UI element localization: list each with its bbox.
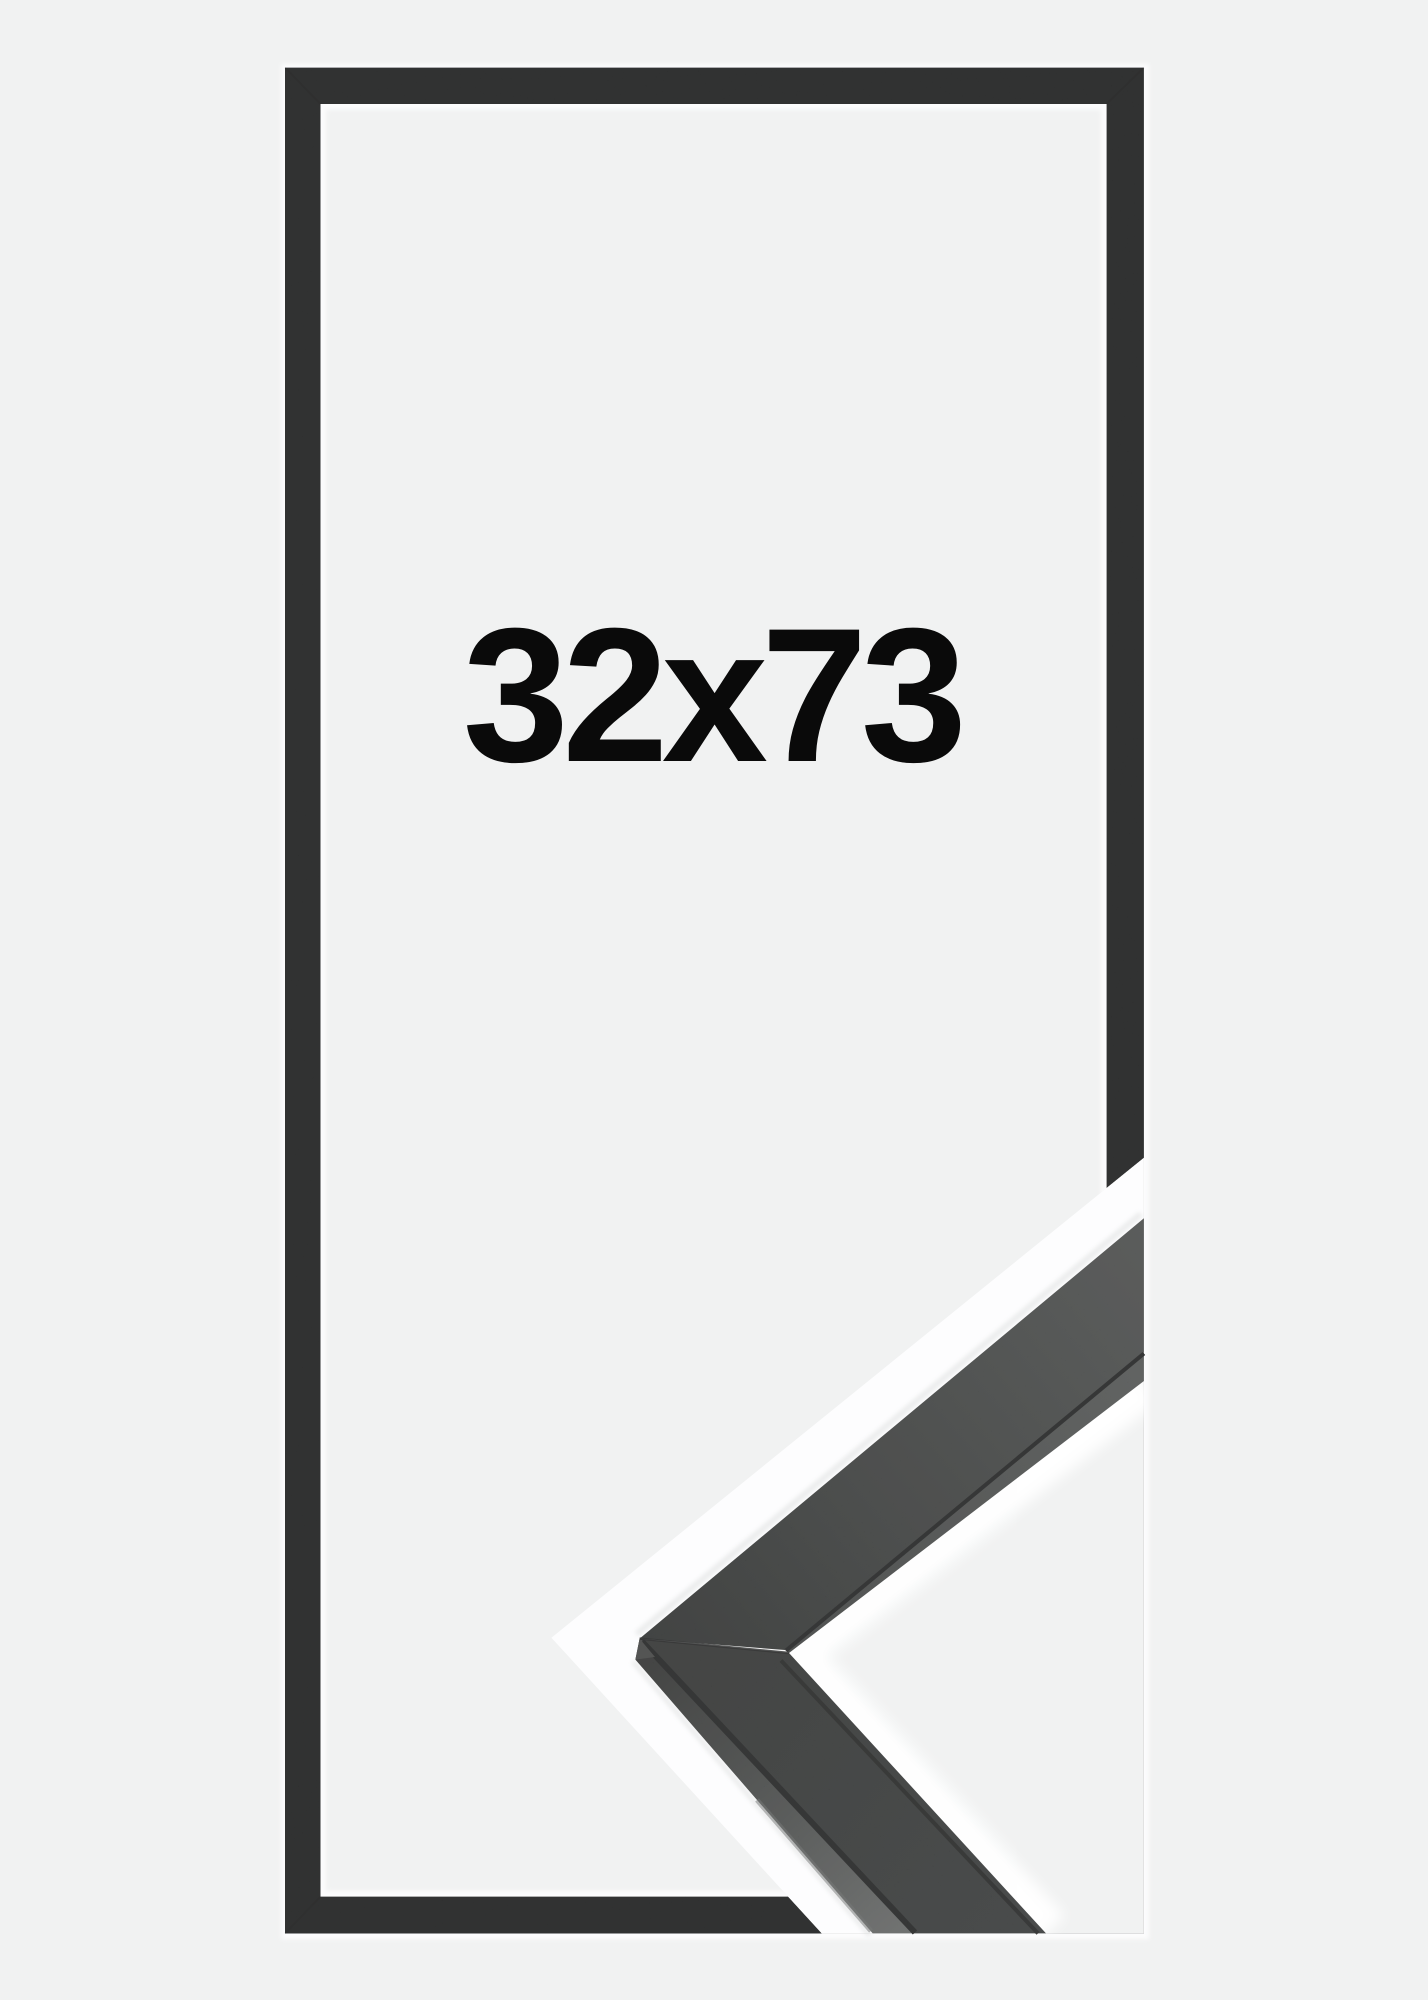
- svg-text:32x73: 32x73: [463, 589, 961, 802]
